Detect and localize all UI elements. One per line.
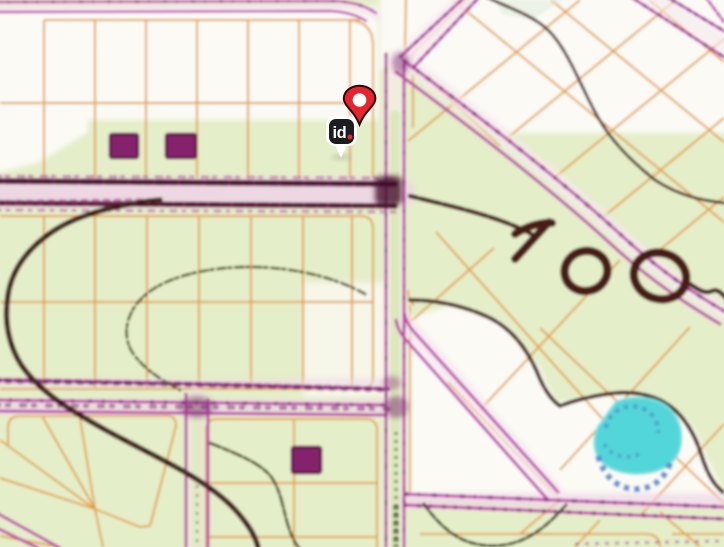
svg-text:id: id	[333, 124, 347, 142]
